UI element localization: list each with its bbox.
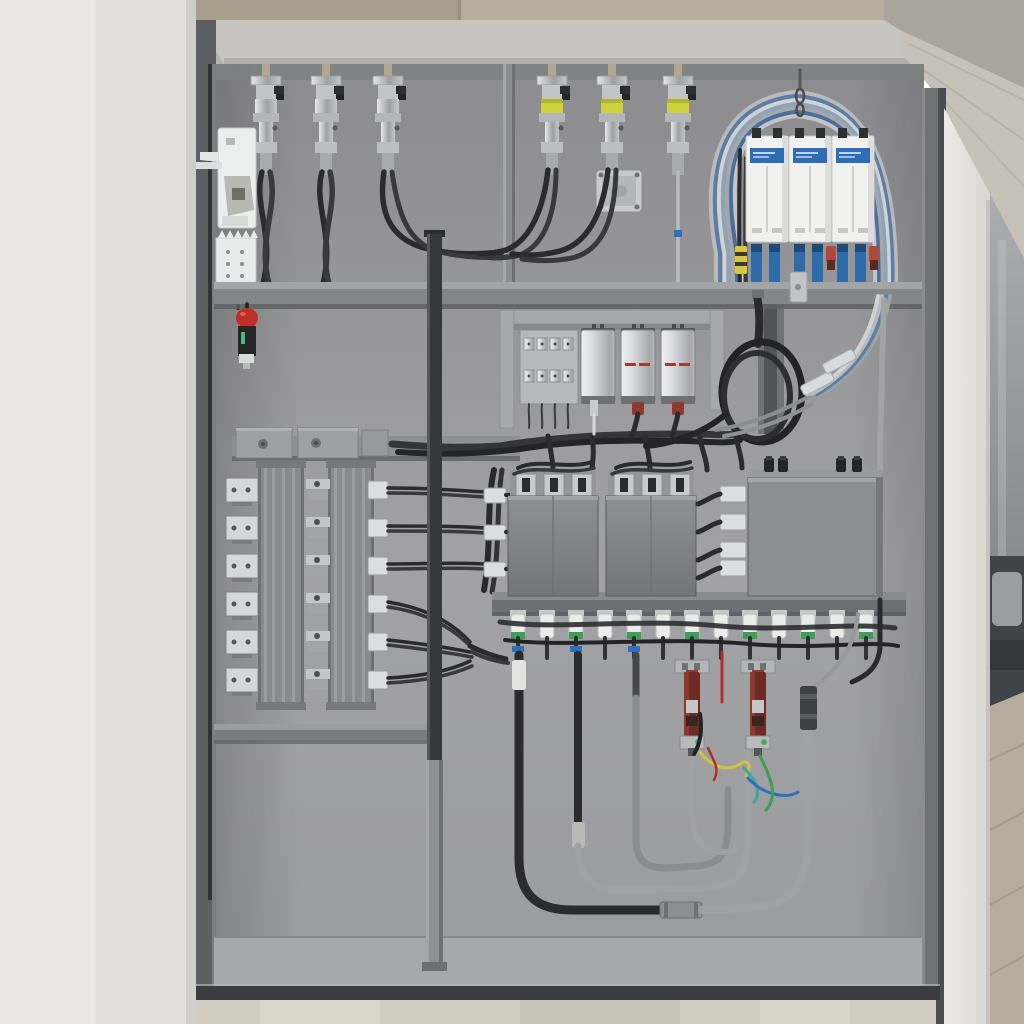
module-connector [751, 246, 762, 288]
emc-cable-gland [605, 122, 619, 142]
gland-clamp [276, 94, 284, 100]
enclosure-left-wall [208, 64, 212, 900]
emc-cable-gland [539, 113, 565, 122]
filter-capacitor [600, 324, 604, 329]
module-connector [751, 244, 762, 252]
terminal-row [246, 640, 251, 645]
white-connector [484, 525, 506, 540]
mini-terminal-panel [567, 375, 570, 378]
red-cap-sensor [236, 308, 258, 328]
top-connector [838, 456, 844, 460]
busbar-extrusion [352, 464, 355, 704]
terminal-row [308, 490, 328, 500]
mounting-pole [439, 760, 443, 966]
red-cap-sensor [240, 312, 246, 316]
cable-gland [255, 99, 277, 113]
white-connector [720, 560, 746, 576]
mini-terminal-panel [541, 375, 544, 378]
terminal-row [308, 528, 328, 538]
product-label [839, 156, 855, 158]
cable-gland [315, 142, 337, 153]
mid-shelf [214, 282, 922, 289]
enclosure-right-wall [922, 88, 925, 986]
contactor-terminal-strip [648, 478, 656, 492]
multipole-terminal-block [226, 250, 230, 254]
terminal-row [308, 604, 328, 614]
terminal-row [308, 642, 328, 652]
left-wall [96, 0, 196, 1024]
red-cap-sensor [238, 326, 256, 356]
busbar-extrusion [334, 464, 337, 704]
fuse-holder-assembly [760, 663, 766, 670]
terminal-rail [298, 428, 358, 431]
outside-floor [260, 998, 380, 1024]
junction-plate [635, 173, 640, 178]
white-connector [720, 486, 746, 502]
module-connector [869, 246, 879, 262]
top-connector [852, 458, 862, 472]
yellow-ferrule [735, 252, 747, 256]
enclosure-sill [196, 986, 940, 1000]
emc-cable-gland [608, 64, 616, 76]
module-connector [837, 246, 848, 288]
cable-gland [333, 126, 338, 131]
panel-wire [568, 404, 569, 428]
terminal-row [314, 557, 320, 563]
terminal-row [226, 554, 258, 578]
bottom-gland [626, 610, 642, 658]
bottom-gland [568, 610, 584, 658]
multipole-terminal-block [240, 274, 244, 278]
din-module [795, 228, 805, 233]
glossy-wall [998, 240, 1006, 580]
terminal-rail [314, 441, 318, 445]
busbar-extrusion [264, 464, 267, 704]
busbar-extrusion [326, 702, 376, 710]
junction-box-large [876, 478, 882, 596]
cable-coil [757, 296, 759, 344]
contactor-box [508, 496, 598, 596]
filter-capacitor [625, 363, 636, 366]
electrical-enclosure-photo [0, 0, 1024, 1024]
module-connector [769, 246, 780, 288]
mounting-clip [795, 128, 804, 138]
terminal-row [232, 616, 252, 620]
cable-sleeve [512, 660, 526, 690]
product-label [796, 156, 812, 158]
terminal-row [226, 630, 258, 654]
cable-gland [322, 64, 330, 76]
hasp [232, 188, 245, 200]
fuse-holder-assembly [752, 716, 764, 726]
contactor-box [552, 496, 554, 596]
upper-cabinet-strip [458, 0, 461, 20]
emc-cable-gland [671, 122, 685, 142]
module-connector [827, 260, 835, 270]
busbar-extrusion [292, 464, 295, 704]
cable-gland [316, 85, 336, 99]
mounting-clip [752, 128, 761, 138]
status-window [241, 332, 245, 344]
capacitor-bracket [500, 310, 514, 428]
contactor-terminal-strip [550, 478, 558, 492]
cable-gland [381, 122, 395, 142]
module-connector [837, 244, 848, 252]
terminal-row [314, 519, 320, 525]
terminal-row [246, 526, 251, 531]
module-connector [826, 246, 836, 262]
door-interlock-bracket [226, 138, 235, 145]
white-connector [484, 562, 506, 577]
gland-clamp [398, 94, 406, 100]
terminal-row [226, 478, 258, 502]
emc-cable-gland [601, 99, 623, 103]
mounting-clip [773, 128, 782, 138]
terminal-row [232, 692, 252, 696]
din-module [815, 228, 825, 233]
contactor-box [606, 496, 696, 596]
busbar-extrusion [326, 460, 376, 468]
terminal-row [232, 502, 252, 506]
terminal-row [368, 481, 388, 499]
terminal-row [232, 540, 252, 544]
emc-cable-gland [541, 99, 563, 103]
cable-marker [628, 646, 640, 652]
product-label [750, 148, 784, 163]
emc-cable-gland [599, 113, 625, 122]
emc-cable-gland [685, 126, 690, 131]
mounting-pole [427, 234, 430, 764]
white-connector [720, 514, 746, 530]
terminal-rail [261, 442, 265, 446]
terminal-row [232, 640, 237, 645]
cable-gland [255, 142, 277, 153]
cable-marker [674, 230, 682, 237]
door-interlock-bracket [222, 216, 248, 226]
white-connector [484, 488, 506, 503]
room-floor [990, 692, 1024, 1024]
junction-plate [599, 173, 604, 178]
mounting-clip [859, 128, 868, 138]
emc-cable-gland [542, 85, 562, 99]
terminal-row [368, 671, 388, 689]
din-module [858, 228, 868, 233]
cable-gland [256, 85, 276, 99]
product-label [753, 152, 775, 154]
emc-cable-gland [668, 85, 688, 99]
cable-coupler [694, 902, 698, 918]
sofa [990, 640, 1024, 670]
cable-gland [319, 122, 333, 142]
bottom-gland [656, 614, 670, 638]
emc-cable-gland [619, 126, 624, 131]
emc-cable-gland [674, 64, 682, 76]
top-connector [766, 456, 772, 460]
din-module [809, 166, 811, 232]
top-connector [780, 456, 786, 460]
gland-clamp [274, 86, 284, 94]
emc-cable-gland [667, 99, 689, 103]
mounting-pole [426, 760, 429, 966]
capacitor-bracket [500, 310, 724, 324]
top-section-divider [512, 64, 515, 284]
yellow-ferrule [735, 246, 747, 274]
upper-cabinet-strip [196, 0, 460, 20]
din-module [746, 128, 788, 242]
mid-shelf [214, 304, 922, 309]
hanger-hook [752, 290, 764, 298]
fuse-holder-assembly [686, 716, 698, 726]
shelf-coupler [795, 284, 801, 290]
terminal-row [368, 557, 388, 575]
cable-gland [373, 76, 403, 85]
terminal-rail [362, 430, 388, 456]
module-connector [769, 244, 780, 252]
terminal-row [246, 678, 251, 683]
left-shelf [214, 730, 430, 740]
outside-floor [520, 1000, 680, 1024]
din-module [838, 228, 848, 233]
din-module [766, 166, 768, 232]
terminal-row [368, 595, 388, 613]
din-module [772, 228, 782, 233]
cable-marker [570, 646, 582, 652]
emc-cable-gland [537, 76, 567, 85]
terminal-row [226, 668, 258, 692]
terminal-row [232, 488, 237, 493]
fuse-holder-assembly [682, 663, 688, 670]
filter-capacitor [639, 363, 650, 366]
white-pillar [944, 108, 990, 1024]
terminal-rail [236, 428, 292, 431]
terminal-row [314, 595, 320, 601]
terminal-row [246, 602, 251, 607]
emc-cable-gland [602, 85, 622, 99]
terminal-row [226, 592, 258, 616]
product-label [796, 152, 818, 154]
red-cap-sensor [243, 363, 250, 369]
din-module [752, 228, 762, 233]
terminal-row [232, 578, 252, 582]
white-pillar [986, 200, 990, 1024]
terminal-row [314, 481, 320, 487]
terminal-row [308, 566, 328, 576]
gland-clamp [686, 86, 696, 94]
cable-gland [273, 126, 278, 131]
busbar-extrusion [256, 702, 306, 710]
busbar-extrusion [371, 464, 374, 704]
emc-cable-gland [597, 76, 627, 85]
mid-shelf [214, 289, 922, 304]
busbar-extrusion [256, 460, 306, 468]
product-label [839, 152, 861, 154]
emc-cable-gland [663, 76, 693, 85]
cable-gland [377, 142, 399, 153]
mini-terminal-panel [528, 375, 531, 378]
terminal-row [308, 680, 328, 690]
terminal-row [232, 654, 252, 658]
multipole-terminal-block [226, 274, 230, 278]
filter-capacitor [640, 324, 644, 329]
fuse-holder-assembly [752, 700, 764, 713]
top-connector [836, 458, 846, 472]
cable-gland [378, 85, 398, 99]
mounting-clip [838, 128, 847, 138]
emc-cable-gland [601, 142, 623, 153]
red-cap-sensor [239, 354, 254, 363]
panel-wire [542, 404, 543, 428]
busbar-extrusion [362, 464, 365, 704]
terminal-row [232, 602, 237, 607]
product-label [793, 148, 827, 163]
contactor-terminal-strip [578, 478, 586, 492]
filter-capacitor [680, 324, 684, 329]
din-module [789, 128, 831, 242]
mini-terminal-panel [554, 343, 557, 346]
contactor-terminal-strip [522, 478, 530, 492]
cable-gland [375, 113, 401, 122]
white-connector [720, 542, 746, 558]
left-shelf [214, 740, 430, 744]
cabinet-top-rail [198, 20, 935, 64]
multipole-terminal-block [240, 262, 244, 266]
yellow-ferrule [735, 262, 747, 266]
terminal-row [368, 519, 388, 537]
filter-capacitor [672, 324, 676, 329]
mini-terminal-panel [528, 343, 531, 346]
screenshot-root [0, 0, 1024, 1024]
junction-box-large [748, 478, 882, 596]
cable-gland [395, 126, 400, 131]
din-module [832, 128, 874, 242]
gland-clamp [620, 86, 630, 94]
cable-gland [259, 122, 273, 142]
gland-clamp [688, 94, 696, 100]
fuse-holder-assembly [686, 700, 698, 713]
terminal-row [314, 633, 320, 639]
terminal-row [232, 564, 237, 569]
cable-gland [251, 76, 281, 85]
busbar-extrusion [342, 464, 345, 704]
top-connector [778, 458, 788, 472]
contactor-box [650, 496, 652, 596]
cabinet-top-rail [224, 58, 935, 64]
busbar-extrusion [256, 460, 306, 710]
emc-cable-gland [665, 113, 691, 122]
product-label [753, 156, 769, 158]
module-connector [855, 244, 866, 252]
cable-gland [253, 113, 279, 122]
cable-coupler [664, 902, 668, 918]
contactor-terminal-strip [620, 478, 628, 492]
terminal-row [246, 488, 251, 493]
busbar-extrusion [301, 464, 304, 704]
cable-gland [313, 113, 339, 122]
gland-clamp [336, 94, 344, 100]
junction-box-large [746, 456, 884, 596]
enclosure-floor [214, 938, 922, 986]
terminal-row [314, 671, 320, 677]
mini-terminal-panel [554, 375, 557, 378]
fuse-holder-assembly [748, 663, 754, 670]
terminal-row [226, 516, 258, 540]
gland-clamp [560, 86, 570, 94]
emc-cable-gland [545, 122, 559, 142]
mounting-clip [816, 128, 825, 138]
busbar-extrusion [272, 464, 275, 704]
gland-clamp [562, 94, 570, 100]
emc-cable-gland [548, 64, 556, 76]
emc-cable-gland [541, 142, 563, 153]
busbar-extrusion [328, 464, 331, 704]
fuse-holder-assembly [694, 663, 700, 670]
module-connector [870, 260, 878, 270]
filter-capacitor [592, 324, 596, 329]
gland-clamp [396, 86, 406, 94]
cable-gland [384, 64, 392, 76]
junction-box-large [748, 478, 882, 482]
junction-plate [635, 205, 640, 210]
terminal-row [368, 633, 388, 651]
multipole-terminal-block [240, 250, 244, 254]
multipole-terminal-block [226, 262, 230, 266]
terminal-row [232, 526, 237, 531]
mini-terminal-panel [541, 343, 544, 346]
filter-capacitor [665, 363, 676, 366]
filter-capacitor [581, 330, 615, 402]
terminal-row [246, 564, 251, 569]
module-connector [794, 244, 805, 252]
mounting-pole [422, 962, 447, 971]
top-connector [764, 458, 774, 472]
terminal-row [232, 678, 237, 683]
cable-gland [315, 99, 337, 113]
cable-fitting [800, 686, 817, 730]
emc-cable-gland [667, 142, 689, 153]
module-connector [812, 246, 823, 288]
din-module [852, 166, 854, 232]
cable-fitting [800, 714, 817, 719]
left-wall [186, 0, 196, 1024]
emc-cable-gland [559, 126, 564, 131]
cable-fitting [800, 694, 817, 699]
cable-gland [262, 64, 270, 76]
cable-gland [377, 99, 399, 113]
filter-capacitor [632, 324, 636, 329]
left-wall [90, 0, 94, 1024]
product-label [836, 148, 870, 163]
mini-terminal-panel [567, 343, 570, 346]
contactor-terminal-strip [676, 478, 684, 492]
gland-clamp [334, 86, 344, 94]
panel-wire [555, 404, 556, 428]
sofa-pillow [992, 572, 1022, 626]
panel-wire [529, 404, 530, 428]
module-connector [812, 244, 823, 252]
gland-clamp [622, 94, 630, 100]
module-connector [855, 246, 866, 288]
status-led [761, 739, 767, 745]
enclosure-left-wall [212, 64, 216, 986]
terminal-rail [298, 428, 358, 458]
cable-gland [311, 76, 341, 85]
outside-floor [760, 998, 850, 1024]
busbar-extrusion [282, 464, 285, 704]
door-interlock-bracket [196, 162, 222, 169]
filter-capacitor [679, 363, 690, 366]
top-connector [854, 456, 860, 460]
